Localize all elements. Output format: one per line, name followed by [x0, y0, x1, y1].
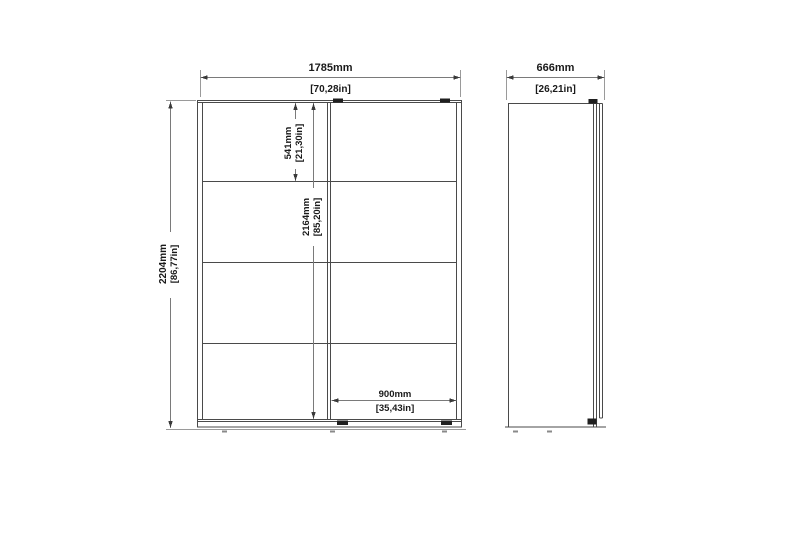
foot-glide-1 — [222, 431, 227, 433]
dim-top-section-height: 541mm [21,30in] — [281, 103, 307, 181]
top-door-guide-left — [333, 99, 343, 103]
dim-interior-height-mm: 2164mm — [301, 198, 312, 236]
dim-top-section-mm: 541mm — [283, 127, 294, 160]
side-foot-glide-1 — [513, 431, 518, 433]
arrowhead-right — [450, 398, 457, 402]
bottom-door-roller-right — [441, 421, 452, 426]
arrowhead-bottom — [168, 421, 172, 428]
dim-side-depth-in: [26,21in] — [535, 84, 576, 95]
side-foot-glide-2 — [547, 431, 552, 433]
side-bottom-door-roller — [588, 419, 597, 425]
arrowhead-right — [454, 75, 461, 79]
front-view — [166, 99, 466, 433]
drawing-canvas: 1785mm [70,28in] 2204mm [86,77in] 541mm … — [0, 0, 800, 533]
technical-drawing: 1785mm [70,28in] 2204mm [86,77in] 541mm … — [0, 0, 800, 533]
arrowhead-bottom — [293, 174, 297, 181]
dim-front-height-mm: 2204mm — [158, 244, 169, 284]
foot-glide-2 — [330, 431, 335, 433]
arrowhead-left — [201, 75, 208, 79]
dim-side-depth: 666mm [26,21in] — [507, 62, 605, 100]
side-top-door-guide — [589, 99, 598, 104]
bottom-door-roller-left — [337, 421, 348, 426]
arrowhead-left — [332, 398, 339, 402]
arrowhead-top — [293, 103, 297, 110]
dim-interior-height-in: [85,20in] — [312, 198, 323, 237]
arrowhead-left — [507, 75, 514, 79]
side-view — [505, 99, 606, 433]
top-door-guide-right — [440, 99, 450, 103]
arrowhead-top — [168, 102, 172, 109]
arrowhead-bottom — [311, 412, 315, 419]
arrowhead-top — [311, 103, 315, 110]
dim-front-width-mm: 1785mm — [308, 62, 352, 74]
dim-front-height: 2204mm [86,77in] — [153, 101, 196, 429]
dim-front-width-in: [70,28in] — [310, 84, 351, 95]
side-carcass-outline — [509, 104, 597, 428]
dim-right-section-mm: 900mm — [379, 389, 412, 400]
dim-right-section-in: [35,43in] — [376, 403, 415, 414]
dim-side-depth-mm: 666mm — [537, 62, 575, 74]
dim-top-section-in: [21,30in] — [294, 124, 305, 163]
dim-front-height-in: [86,77in] — [169, 245, 180, 284]
foot-glide-3 — [442, 431, 447, 433]
dim-front-width: 1785mm [70,28in] — [201, 62, 461, 97]
arrowhead-right — [598, 75, 605, 79]
dim-right-section-width: 900mm [35,43in] — [332, 389, 457, 414]
front-carcass-outline — [198, 101, 462, 428]
